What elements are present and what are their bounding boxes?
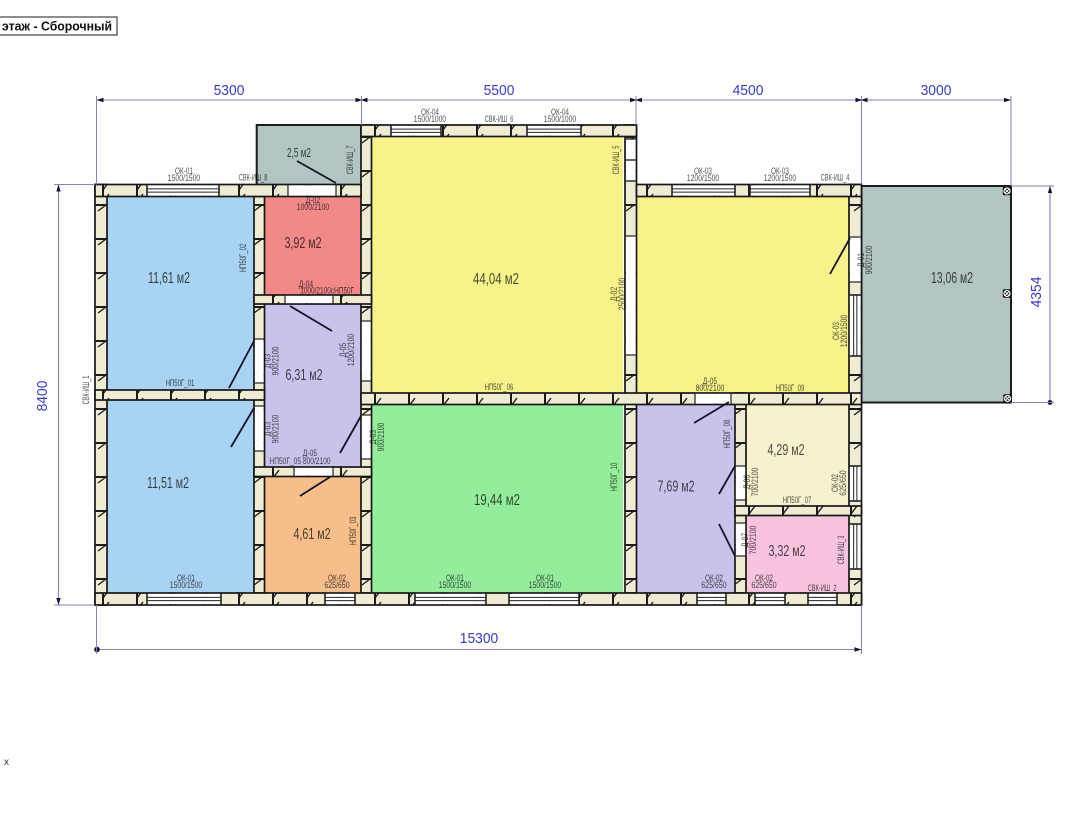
- svg-text:11,61 м2: 11,61 м2: [148, 270, 190, 287]
- svg-text:800/2100: 800/2100: [696, 383, 725, 393]
- svg-text:1500/1500: 1500/1500: [170, 580, 202, 590]
- svg-text:1200/2100: 1200/2100: [346, 334, 356, 366]
- svg-text:НП50Г_02: НП50Г_02: [238, 244, 248, 273]
- svg-text:СВК-ИШ_3: СВК-ИШ_3: [836, 536, 846, 565]
- svg-text:3,32 м2: 3,32 м2: [769, 543, 806, 560]
- svg-text:2,5 м2: 2,5 м2: [287, 145, 311, 160]
- svg-text:СВК-ИШ_8: СВК-ИШ_8: [239, 173, 268, 183]
- svg-text:НП50Г_05 800/2100: НП50Г_05 800/2100: [269, 456, 330, 466]
- svg-text:13,06 м2: 13,06 м2: [931, 270, 973, 287]
- svg-text:625/650: 625/650: [838, 470, 848, 495]
- svg-text:3,92 м2: 3,92 м2: [285, 235, 322, 252]
- svg-text:НП50Г_08: НП50Г_08: [722, 420, 732, 449]
- svg-text:этаж - Сборочный: этаж - Сборочный: [2, 19, 112, 34]
- svg-text:СВК-ИШ_2: СВК-ИШ_2: [808, 583, 837, 593]
- svg-text:5500: 5500: [484, 82, 515, 99]
- svg-text:СВК-ИШ_1: СВК-ИШ_1: [81, 376, 91, 405]
- svg-text:1200/1500: 1200/1500: [687, 173, 719, 183]
- svg-text:НП50Г_09: НП50Г_09: [776, 383, 805, 393]
- svg-text:900/2100: 900/2100: [864, 246, 874, 275]
- svg-text:4354: 4354: [1028, 277, 1045, 308]
- svg-text:5300: 5300: [214, 82, 245, 99]
- svg-text:1000/2100сНП50Г_: 1000/2100сНП50Г_: [300, 286, 358, 296]
- svg-text:4,61 м2: 4,61 м2: [294, 526, 331, 543]
- svg-text:19,44 м2: 19,44 м2: [474, 492, 520, 509]
- svg-text:СВК-ИШ_6: СВК-ИШ_6: [485, 114, 514, 124]
- svg-text:7,69 м2: 7,69 м2: [658, 479, 695, 496]
- svg-text:1500/1000: 1500/1000: [544, 114, 576, 124]
- svg-text:700/2100: 700/2100: [748, 526, 758, 555]
- svg-text:1200/1500: 1200/1500: [839, 315, 849, 347]
- svg-text:НП50Г_07: НП50Г_07: [783, 495, 812, 505]
- svg-text:СВК-ИШ_7: СВК-ИШ_7: [345, 146, 355, 175]
- svg-text:1500/1500: 1500/1500: [529, 580, 561, 590]
- svg-text:НП50Г_01: НП50Г_01: [166, 378, 195, 388]
- svg-text:900/2100: 900/2100: [271, 415, 281, 444]
- svg-text:1500/1500: 1500/1500: [439, 580, 471, 590]
- svg-text:625/650: 625/650: [324, 580, 349, 590]
- svg-text:625/650: 625/650: [701, 580, 726, 590]
- svg-text:1500/1500: 1500/1500: [168, 173, 200, 183]
- svg-text:СВК-ИШ_5: СВК-ИШ_5: [611, 146, 621, 175]
- svg-text:6,31 м2: 6,31 м2: [286, 367, 323, 384]
- svg-text:700/2100: 700/2100: [750, 468, 760, 497]
- svg-text:2500/2100: 2500/2100: [617, 278, 627, 310]
- svg-text:11,51 м2: 11,51 м2: [147, 475, 189, 492]
- svg-text:44,04 м2: 44,04 м2: [473, 271, 519, 288]
- svg-text:НП50Г_10: НП50Г_10: [609, 463, 619, 492]
- svg-text:4500: 4500: [733, 82, 764, 99]
- svg-text:900/2100: 900/2100: [271, 347, 281, 376]
- svg-text:625/650: 625/650: [751, 580, 776, 590]
- svg-text:4,29 м2: 4,29 м2: [768, 442, 805, 459]
- svg-text:900/2100: 900/2100: [376, 423, 386, 452]
- svg-text:НП50Г_06: НП50Г_06: [485, 382, 514, 392]
- svg-text:15300: 15300: [460, 630, 499, 647]
- svg-text:x: x: [4, 757, 9, 768]
- svg-text:1200/1500: 1200/1500: [764, 173, 796, 183]
- svg-text:8400: 8400: [34, 381, 51, 412]
- svg-text:1000/2100: 1000/2100: [297, 202, 329, 212]
- svg-text:НП50Г_03: НП50Г_03: [348, 517, 358, 546]
- svg-text:3000: 3000: [921, 82, 952, 99]
- svg-text:СВК-ИШ_4: СВК-ИШ_4: [821, 173, 850, 183]
- svg-text:1500/1000: 1500/1000: [414, 114, 446, 124]
